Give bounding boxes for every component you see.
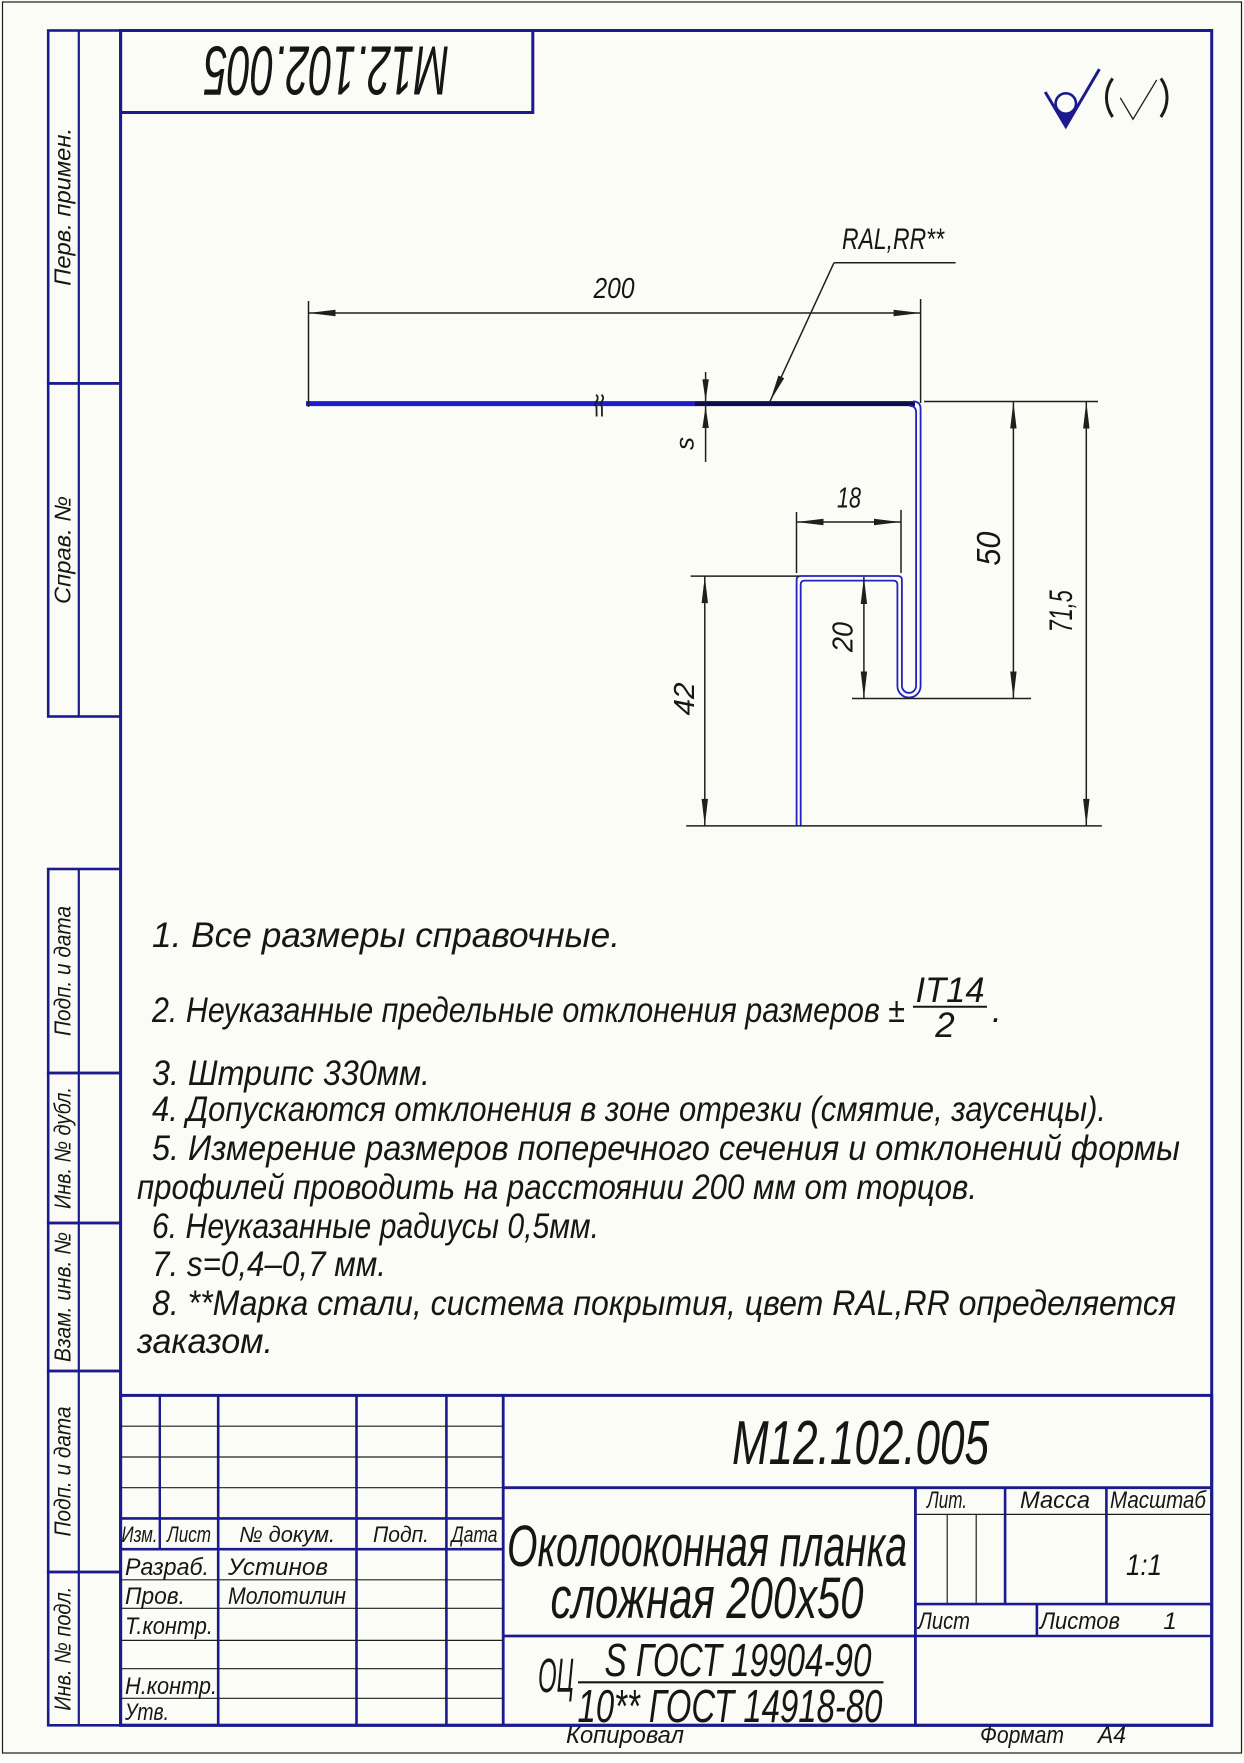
svg-text:профилей проводить на расстоян: профилей проводить на расстоянии 200 мм … (137, 1168, 977, 1207)
svg-text:1: 1 (1163, 1608, 1176, 1635)
svg-text:заказом.: заказом. (136, 1322, 273, 1361)
svg-text:IT14: IT14 (916, 971, 985, 1010)
svg-text:Н.контр.: Н.контр. (125, 1673, 217, 1700)
svg-text:4. Допускаются отклонения в з: 4. Допускаются отклонения в зоне отрезки… (152, 1090, 1106, 1129)
svg-text:RAL,RR**: RAL,RR** (842, 223, 945, 256)
svg-text:S ГОСТ 19904-90: S ГОСТ 19904-90 (605, 1634, 872, 1686)
svg-text:3. Штрипс 330мм.: 3. Штрипс 330мм. (152, 1054, 430, 1093)
svg-text:200: 200 (593, 273, 635, 305)
svg-text:Справ. №: Справ. № (50, 496, 76, 604)
svg-text:18: 18 (837, 483, 861, 515)
svg-text:71,5: 71,5 (1043, 590, 1079, 632)
svg-text:Подп. и дата: Подп. и дата (50, 1407, 76, 1537)
svg-text:Подп. и дата: Подп. и дата (50, 906, 76, 1036)
svg-text:Утв.: Утв. (124, 1699, 169, 1726)
svg-text:Инв. № подл.: Инв. № подл. (50, 1587, 76, 1711)
svg-text:Молотилин: Молотилин (228, 1583, 346, 1610)
svg-text:Инв. № дубл.: Инв. № дубл. (50, 1087, 76, 1209)
svg-text:8. **Марка стали, система по: 8. **Марка стали, система покрытия, цвет… (152, 1284, 1176, 1323)
svg-text:Масса: Масса (1020, 1487, 1090, 1514)
svg-text:Лист: Лист (916, 1608, 970, 1635)
svg-text:Изм.: Изм. (122, 1522, 158, 1547)
svg-text:Устинов: Устинов (227, 1554, 328, 1581)
svg-text:1. Все размеры справочные.: 1. Все размеры справочные. (152, 916, 620, 955)
svg-text:Листов: Листов (1038, 1608, 1120, 1635)
svg-text:5. Измерение размеров попер: 5. Измерение размеров поперечного сечени… (152, 1129, 1180, 1168)
svg-text:Формат: Формат (980, 1722, 1064, 1749)
svg-text:6. Неуказанные радиусы 0,5мм.: 6. Неуказанные радиусы 0,5мм. (152, 1207, 599, 1246)
svg-text:Лист: Лист (165, 1522, 211, 1547)
svg-text:20: 20 (828, 622, 860, 653)
svg-text:50: 50 (970, 531, 1007, 566)
svg-text:.: . (992, 991, 1002, 1030)
svg-text:ОЦ: ОЦ (538, 1650, 574, 1703)
svg-text:Масштаб: Масштаб (1110, 1487, 1207, 1514)
svg-text:7. s=0,4–0,7 мм.: 7. s=0,4–0,7 мм. (152, 1245, 386, 1284)
svg-text:сложная 200x50: сложная 200x50 (551, 1566, 864, 1631)
svg-text:Разраб.: Разраб. (125, 1554, 209, 1581)
svg-text:Дата: Дата (449, 1522, 497, 1547)
svg-text:s: s (670, 437, 700, 450)
svg-text:Копировал: Копировал (566, 1722, 684, 1749)
svg-text:Т.контр.: Т.контр. (125, 1613, 213, 1640)
svg-text:2: 2 (934, 1006, 954, 1045)
svg-text:Взам. инв. №: Взам. инв. № (50, 1232, 76, 1362)
svg-text:М12.102.005: М12.102.005 (203, 32, 449, 110)
svg-text:Перв. примен.: Перв. примен. (50, 128, 76, 286)
svg-text:А4: А4 (1096, 1722, 1126, 1749)
svg-text:№ докум.: № докум. (239, 1522, 335, 1547)
svg-text:1:1: 1:1 (1126, 1549, 1162, 1582)
svg-text:Лит.: Лит. (926, 1487, 967, 1514)
svg-text:Подп.: Подп. (373, 1522, 429, 1547)
svg-text:42: 42 (669, 683, 701, 716)
svg-text:М12.102.005: М12.102.005 (732, 1409, 989, 1478)
svg-text:Пров.: Пров. (125, 1583, 185, 1610)
svg-text:2. Неуказанные предельные отк: 2. Неуказанные предельные отклонения раз… (151, 991, 905, 1030)
